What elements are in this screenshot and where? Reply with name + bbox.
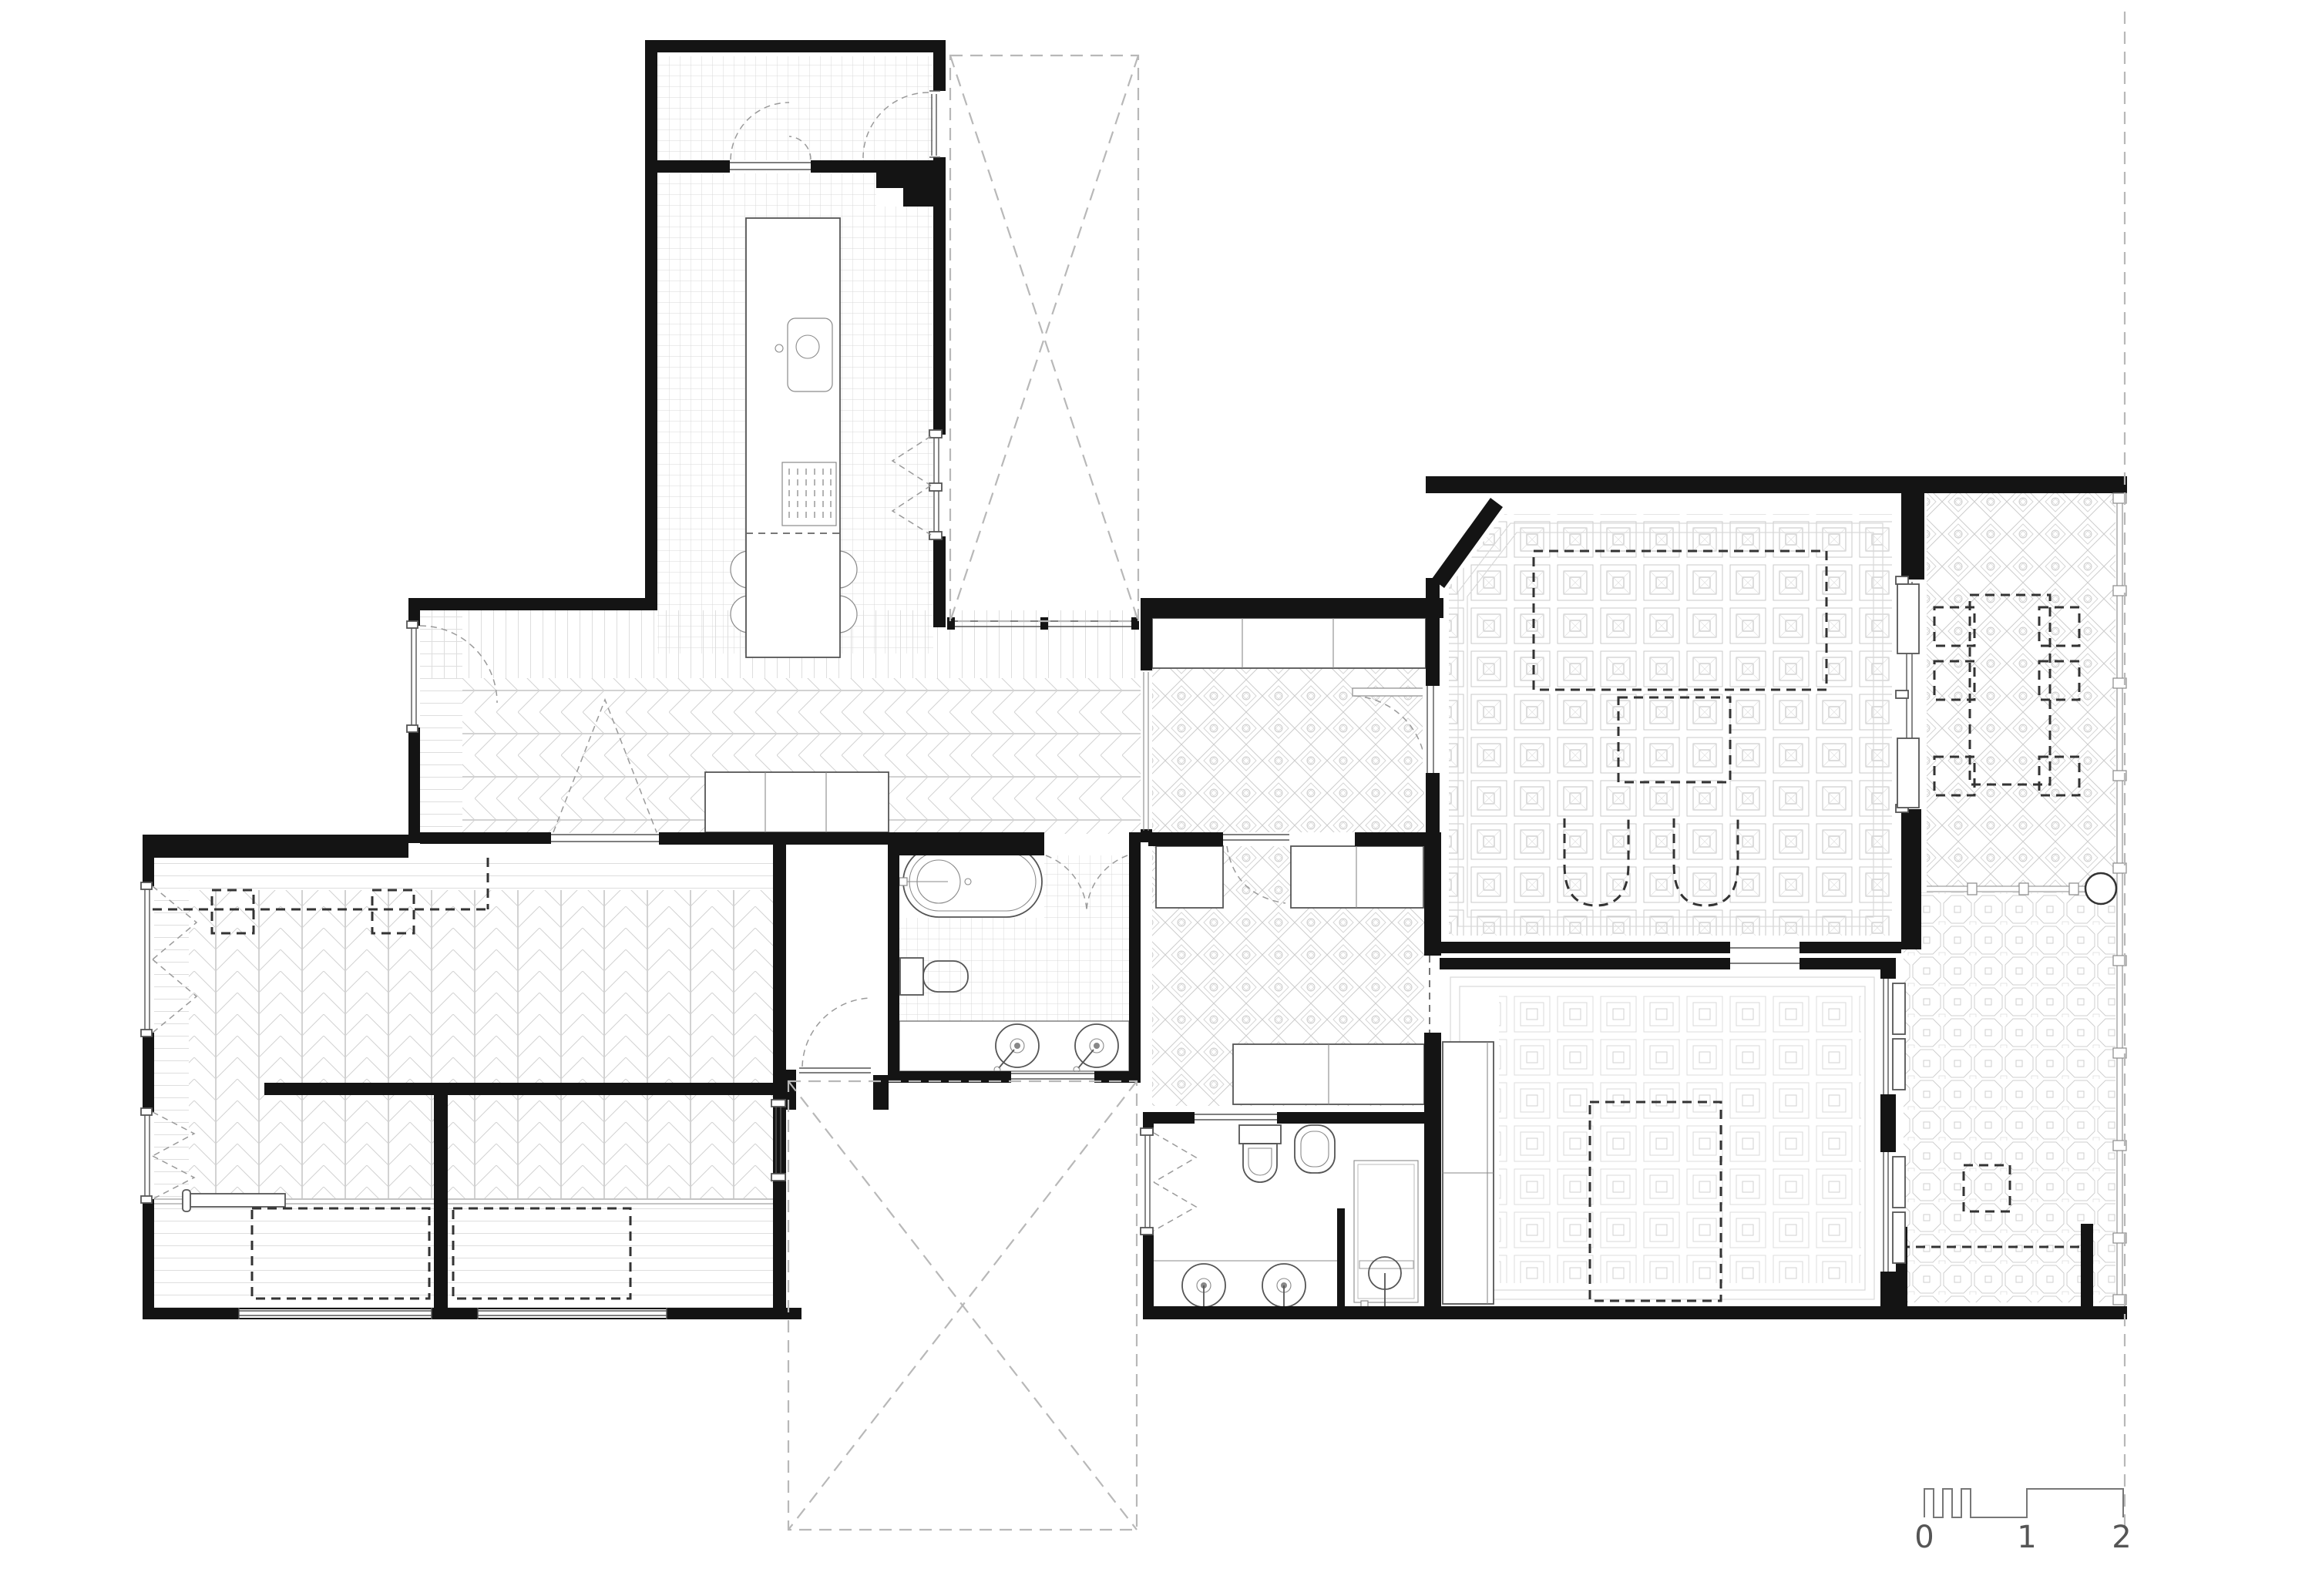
floor-finishes (154, 56, 2115, 1309)
scale-label-2: 2 (2112, 1520, 2131, 1555)
toilet-cistern (900, 958, 923, 995)
hall-sideboard (705, 772, 889, 832)
wall (1901, 809, 1921, 949)
washbasin-drain-dot (1014, 1043, 1020, 1049)
sideboard (705, 772, 889, 832)
wall (434, 1095, 448, 1308)
wall (143, 1033, 154, 1112)
wall (1148, 832, 1223, 846)
wall (1800, 942, 1901, 953)
wall (1277, 1112, 1426, 1124)
window-end (771, 1174, 785, 1181)
wall (1426, 773, 1440, 842)
laundry-cabinet (1291, 846, 1423, 908)
door-opening (1423, 686, 1443, 773)
floor-plan-canvas: 0 1 2 (0, 0, 2312, 1596)
glazing-post (1896, 576, 1908, 584)
vestibule-closet (1152, 618, 1426, 668)
scale-bar: 0 1 2 (1914, 1489, 2131, 1555)
living-window (145, 1112, 150, 1199)
wall (1440, 942, 1730, 953)
wall (1424, 1033, 1441, 1318)
wall (933, 536, 946, 627)
divider-post (2069, 883, 2078, 895)
shutter-leaf (1893, 1212, 1905, 1263)
window-end (141, 882, 152, 889)
courtyard-void-top (950, 55, 1138, 621)
bedroom-window (1884, 979, 1888, 1094)
wall (408, 598, 657, 610)
wall (873, 1075, 889, 1110)
wall (645, 40, 657, 610)
bidet-cistern (1239, 1125, 1281, 1144)
living-window (145, 886, 150, 1033)
laundry-cabinet (1156, 846, 1223, 908)
wall (2081, 1224, 2093, 1319)
window-end (407, 621, 418, 628)
wall (143, 835, 408, 858)
wall (408, 727, 420, 843)
bedroom-window (1884, 1152, 1888, 1272)
wall (1152, 598, 1443, 618)
living-plank-left (154, 858, 189, 1309)
shower-stall (1354, 1161, 1418, 1302)
wall (143, 835, 154, 886)
window-end (407, 725, 418, 732)
kitchen-stove (782, 462, 836, 526)
wall (420, 832, 551, 844)
wall (933, 157, 946, 435)
shutter-leaf (1893, 1039, 1905, 1090)
window-end (141, 1108, 152, 1115)
bedroom-coffered-floor (1499, 994, 1861, 1283)
wall (811, 160, 876, 173)
divider-post (2019, 883, 2028, 895)
entry-steps-wall (876, 160, 933, 207)
terrace-upper-tile-floor (1927, 493, 2115, 886)
window-end (1141, 1228, 1153, 1235)
wall (645, 40, 946, 52)
column (2085, 873, 2116, 904)
divider-post (1968, 883, 1977, 895)
scale-bar-shape (1924, 1489, 2123, 1517)
wall (1426, 476, 2127, 493)
wall (1426, 578, 1440, 686)
wall (888, 842, 899, 1083)
shelf (1353, 688, 1424, 696)
window-end (1141, 1128, 1153, 1135)
terrace-railing (2117, 493, 2122, 1304)
wall (1129, 842, 1141, 1083)
courtyard-void-bottom (788, 1081, 1137, 1530)
wall (1337, 1208, 1345, 1306)
wc-folding-door (1145, 1133, 1150, 1231)
wall (1143, 1231, 1154, 1318)
wall (933, 52, 946, 91)
scale-label-1: 1 (2017, 1520, 2036, 1555)
sliding-door-leaf (189, 1194, 285, 1207)
wc-fixtures (1154, 1125, 1418, 1308)
window-mullion (929, 483, 942, 491)
wall (1424, 842, 1441, 956)
wall (1426, 1306, 1896, 1319)
kitchen-island (746, 218, 840, 657)
window-end (771, 1100, 785, 1107)
wall (1880, 1094, 1896, 1152)
washbasin-drain-dot (1094, 1043, 1100, 1049)
wc-toilet-inner (1301, 1131, 1329, 1167)
window-mullion (929, 430, 942, 438)
wall (1896, 1306, 2127, 1319)
living-plank-top (154, 858, 773, 890)
glazing-post (1896, 690, 1908, 698)
folding-door-swing (1154, 1133, 1196, 1231)
scale-label-0: 0 (1914, 1520, 1934, 1555)
glazing-post (1040, 617, 1048, 630)
wall (1141, 598, 1152, 670)
hall-window (412, 626, 416, 727)
living-herringbone-floor (189, 890, 773, 1198)
wall (899, 842, 1044, 855)
wall (1901, 493, 1924, 580)
terrace-divider (1927, 886, 2090, 892)
window-end (141, 1030, 152, 1037)
shower-drain-bar (1359, 1261, 1413, 1268)
floor-plan-page: 0 1 2 (0, 0, 2312, 1596)
door-swing (802, 998, 871, 1067)
floor-step-lines (1144, 672, 1148, 831)
window-end (141, 1196, 152, 1203)
door-leaf-open (1897, 738, 1919, 808)
shower-stall-inner (1358, 1164, 1414, 1299)
wall (264, 1083, 773, 1095)
shutter-leaf (1893, 983, 1905, 1034)
wall (1440, 958, 1730, 969)
wall (1800, 958, 1892, 969)
alcove-plank-floor (189, 1206, 773, 1308)
wall (657, 160, 730, 173)
bathtub-faucet (899, 878, 907, 885)
entry-tile-floor (657, 56, 933, 160)
sliding-door-handle (183, 1190, 190, 1211)
kitchen-area (731, 218, 857, 657)
wall (143, 1199, 154, 1319)
wall (1880, 958, 1896, 979)
kitchen-sink (788, 318, 832, 391)
bidet-bowl-inner (1248, 1148, 1272, 1175)
wall (1143, 1306, 1440, 1319)
salon-coffered-floor (1449, 514, 1892, 936)
shutter-leaf (1893, 1157, 1905, 1208)
window-mullion (929, 532, 942, 539)
hall-plank-left (420, 610, 462, 834)
door-leaf-open (1897, 584, 1919, 654)
